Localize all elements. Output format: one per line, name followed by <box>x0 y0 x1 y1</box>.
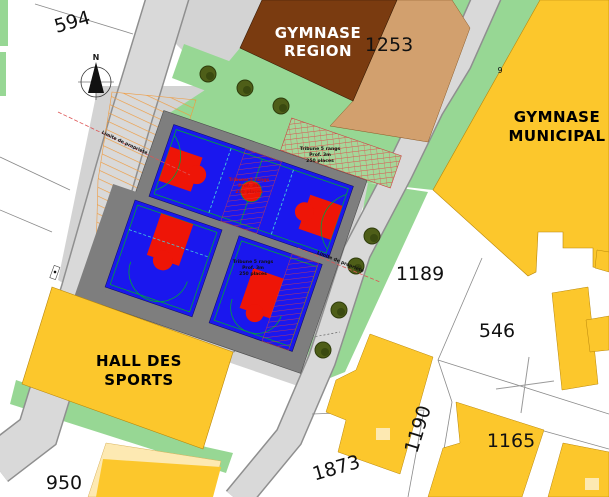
gymnase-region-label-line2: REGION <box>284 42 352 60</box>
tribune-center-line1: Tribune 5 rangs <box>229 177 270 183</box>
tribune-top-line3: 250 places <box>306 158 334 164</box>
building-corner-notch <box>585 478 599 490</box>
hall-des-sports-label-line1: HALL DES <box>96 352 182 370</box>
building-east-small <box>595 250 609 272</box>
parcel-label-546: 546 <box>479 320 515 342</box>
tribune-top-line2: Prof. 3m <box>309 152 331 158</box>
tree <box>331 302 347 318</box>
parcel-label-1253: 1253 <box>365 34 413 56</box>
tribune-bottom-line1: Tribune 5 rangs <box>233 259 274 265</box>
tree <box>364 228 380 244</box>
parcel-label-9: 9 <box>497 66 502 75</box>
site-plan: N 594 1253 9 1189 546 1190 1165 1873 950… <box>0 0 609 497</box>
tree <box>237 80 253 96</box>
gymnase-region-label-line1: GYMNASE <box>275 24 361 42</box>
parcel-label-950: 950 <box>46 472 82 494</box>
tribune-top-line1: Tribune 5 rangs <box>300 146 341 152</box>
gymnase-municipal-label-line2: MUNICIPAL <box>508 127 605 145</box>
parcel-label-1189: 1189 <box>396 263 444 285</box>
hall-des-sports-label-line2: SPORTS <box>104 371 173 389</box>
tree <box>273 98 289 114</box>
tribune-center-line3: 250 places <box>235 189 263 195</box>
gymnase-municipal-label-line1: GYMNASE <box>514 108 600 126</box>
site-plan-canvas: N 594 1253 9 1189 546 1190 1165 1873 950… <box>0 0 609 497</box>
building-546-wing <box>586 316 609 352</box>
north-label: N <box>93 53 100 62</box>
green-sliver-top <box>0 0 8 46</box>
tree <box>315 342 331 358</box>
parcel-label-1165: 1165 <box>487 430 535 452</box>
green-sliver-mid <box>0 52 6 96</box>
tribune-bottom-line2: Prof. 3m <box>242 265 264 271</box>
building-1190-notch <box>376 428 390 440</box>
tribune-bottom-line3: 250 places <box>239 271 267 277</box>
tribune-center-line2: Prof. 3m <box>238 183 260 189</box>
tree <box>200 66 216 82</box>
